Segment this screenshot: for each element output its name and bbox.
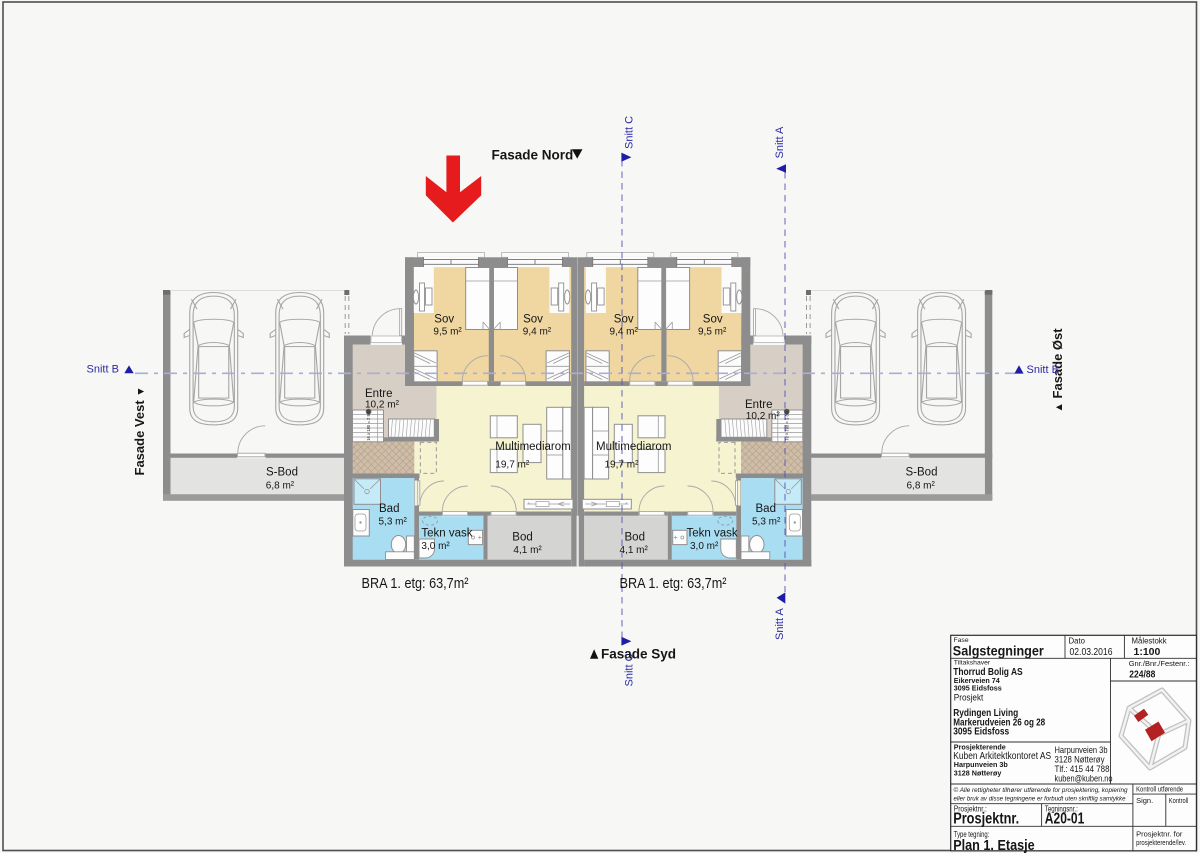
svg-text:3095 Eidsfoss: 3095 Eidsfoss	[954, 684, 1002, 693]
svg-text:Snitt A: Snitt A	[774, 608, 786, 640]
svg-text:Fasade Vest ▼: Fasade Vest ▼	[132, 386, 147, 475]
svg-text:BRA 1. etg: 63,7m²: BRA 1. etg: 63,7m²	[362, 575, 469, 592]
svg-text:Sov: Sov	[614, 314, 634, 326]
svg-text:Tekn vask: Tekn vask	[687, 528, 738, 540]
svg-text:Bad: Bad	[379, 503, 399, 515]
svg-text:Kontroll utførende: Kontroll utførende	[1136, 784, 1183, 793]
svg-text:9,5 m²: 9,5 m²	[698, 327, 727, 338]
svg-text:Sov: Sov	[523, 314, 543, 326]
svg-text:Snitt B: Snitt B	[87, 364, 119, 376]
svg-text:16 x 180 = 2 900: 16 x 180 = 2 900	[366, 409, 371, 441]
svg-text:10,2 m²: 10,2 m²	[365, 400, 400, 411]
svg-text:3,0 m²: 3,0 m²	[421, 541, 450, 552]
svg-text:Prosjekt: Prosjekt	[954, 692, 984, 702]
svg-text:Dato: Dato	[1069, 637, 1086, 646]
svg-text:© Alle rettigheter tilhører ut: © Alle rettigheter tilhører utførende fo…	[954, 786, 1128, 794]
svg-text:Snitt A: Snitt A	[774, 126, 786, 158]
svg-text:Bad: Bad	[756, 503, 776, 515]
svg-text:9,5 m²: 9,5 m²	[433, 327, 462, 338]
svg-text:Fasade Nord: Fasade Nord	[492, 148, 574, 163]
svg-text:Multimediarom: Multimediarom	[495, 441, 570, 453]
svg-text:Snitt C: Snitt C	[624, 116, 636, 149]
svg-text:Sign.: Sign.	[1136, 796, 1153, 805]
svg-text:02.03.2016: 02.03.2016	[1070, 646, 1113, 658]
svg-text:S-Bod: S-Bod	[266, 466, 298, 478]
svg-text:3095 Eidsfoss: 3095 Eidsfoss	[953, 726, 1009, 738]
svg-text:4,1 m²: 4,1 m²	[620, 545, 649, 556]
svg-text:6,8 m²: 6,8 m²	[266, 481, 295, 492]
svg-text:19,7 m²: 19,7 m²	[605, 460, 640, 471]
svg-text:kuben@kuben.no: kuben@kuben.no	[1055, 773, 1113, 784]
svg-text:10,2 m²: 10,2 m²	[746, 411, 781, 422]
svg-text:Kontroll: Kontroll	[1169, 796, 1189, 805]
svg-text:19,7 m²: 19,7 m²	[495, 460, 530, 471]
svg-text:Entre: Entre	[745, 399, 773, 411]
svg-text:Sov: Sov	[703, 314, 723, 326]
svg-text:4,1 m²: 4,1 m²	[513, 545, 542, 556]
svg-text:Entre: Entre	[365, 388, 393, 400]
svg-text:Salgstegninger: Salgstegninger	[953, 644, 1045, 659]
svg-text:BRA 1. etg: 63,7m²: BRA 1. etg: 63,7m²	[620, 575, 727, 592]
svg-text:Bod: Bod	[625, 532, 645, 544]
svg-text:prosjekterende/lev.: prosjekterende/lev.	[1136, 838, 1186, 847]
svg-text:3,0 m²: 3,0 m²	[690, 541, 719, 552]
svg-text:Gnr./Bnr./Festenr.:: Gnr./Bnr./Festenr.:	[1129, 659, 1190, 668]
svg-text:6,8 m²: 6,8 m²	[907, 481, 936, 492]
svg-text:Prosjektnr.: Prosjektnr.	[953, 810, 1019, 827]
svg-text:A20-01: A20-01	[1045, 811, 1085, 828]
svg-text:224/88: 224/88	[1129, 670, 1155, 681]
svg-text:9,4 m²: 9,4 m²	[610, 327, 639, 338]
svg-text:Plan 1. Etasje: Plan 1. Etasje	[953, 838, 1034, 853]
svg-text:5,3 m²: 5,3 m²	[752, 517, 781, 528]
svg-text:Sov: Sov	[434, 314, 454, 326]
svg-text:Snitt C: Snitt C	[624, 653, 636, 686]
svg-text:Snitt B: Snitt B	[1027, 364, 1059, 376]
svg-text:Fasade Syd: Fasade Syd	[601, 647, 676, 662]
svg-text:Bod: Bod	[512, 532, 532, 544]
svg-text:3128 Nøtterøy: 3128 Nøtterøy	[954, 768, 1002, 777]
svg-text:9,4 m²: 9,4 m²	[523, 327, 552, 338]
svg-text:eller bruk av disse tegningene: eller bruk av disse tegningene er forbud…	[954, 795, 1126, 802]
svg-text:Målestokk: Målestokk	[1132, 637, 1167, 646]
svg-text:Multimediarom: Multimediarom	[596, 441, 671, 453]
svg-text:Tekn vask: Tekn vask	[421, 528, 472, 540]
svg-text:S-Bod: S-Bod	[906, 466, 938, 478]
svg-text:5,3 m²: 5,3 m²	[379, 517, 408, 528]
svg-text:1:100: 1:100	[1134, 646, 1161, 658]
